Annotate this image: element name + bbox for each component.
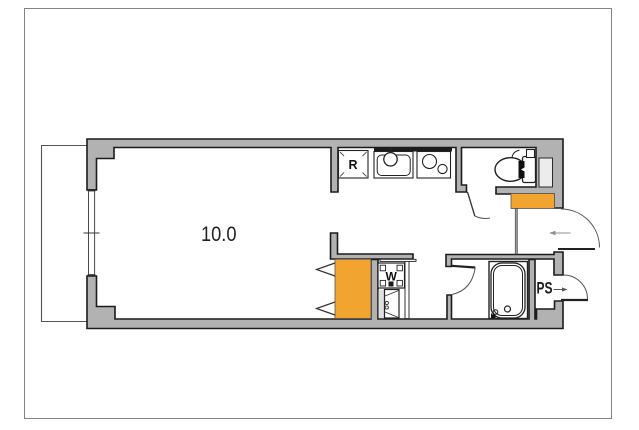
svg-text:10.0: 10.0: [201, 223, 237, 246]
svg-text:R: R: [348, 158, 357, 172]
svg-text:W: W: [386, 270, 398, 284]
svg-text:PS: PS: [537, 280, 553, 298]
